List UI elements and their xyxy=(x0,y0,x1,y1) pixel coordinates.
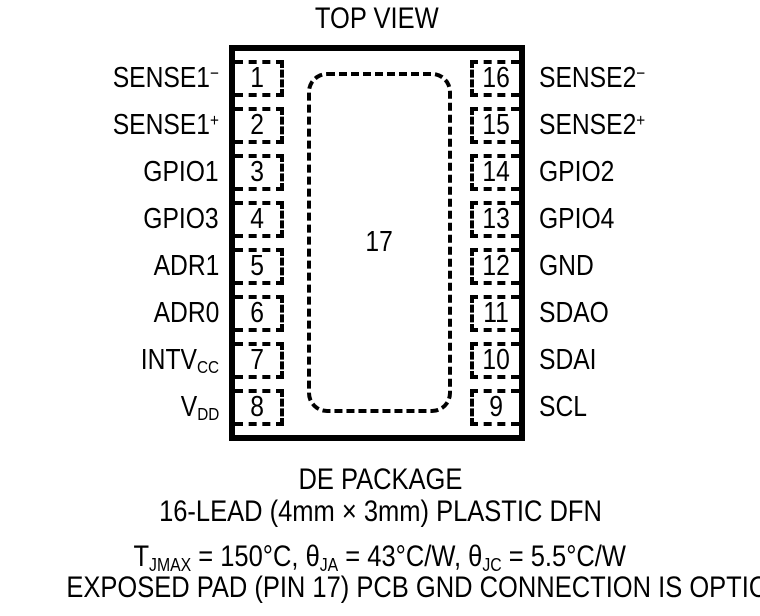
pin-pad-3: 3 xyxy=(235,154,284,191)
pin-label-base: SENSE1 xyxy=(113,109,210,141)
pin-number-12: 12 xyxy=(483,252,510,281)
pin-number-7: 7 xyxy=(251,346,265,375)
exposed-pad: 17 xyxy=(307,72,452,413)
package-name: DE PACKAGE xyxy=(0,464,760,496)
pin-label-sub: CC xyxy=(197,357,219,377)
pin-number-3: 3 xyxy=(251,158,265,187)
pin-pad-4: 4 xyxy=(235,201,284,238)
pin-number-14: 14 xyxy=(483,158,510,187)
pin-pad-5: 5 xyxy=(235,248,284,285)
pin-label-base: SENSE2 xyxy=(539,109,636,141)
top-view-title: TOP VIEW xyxy=(229,3,525,35)
pin-number-8: 8 xyxy=(251,393,265,422)
pin-label-base: V xyxy=(180,391,196,423)
pin-label-sup: − xyxy=(210,63,219,83)
pin-pad-8: 8 xyxy=(235,389,284,426)
pin-label-8: VDD xyxy=(0,389,219,426)
exposed-pad-number: 17 xyxy=(366,228,393,257)
pin-label-base: GPIO1 xyxy=(144,156,219,188)
pin-label-4-text: GPIO3 xyxy=(144,205,219,234)
pin-label-14-text: GPIO2 xyxy=(539,158,614,187)
pin-label-12: GND xyxy=(539,248,760,285)
pin-label-11-text: SDAO xyxy=(539,299,609,328)
exposed-pad-note: EXPOSED PAD (PIN 17) PCB GND CONNECTION … xyxy=(0,572,760,604)
pin-label-9-text: SCL xyxy=(539,393,587,422)
pin-label-15-text: SENSE2+ xyxy=(539,111,645,140)
pin-number-13: 13 xyxy=(483,205,510,234)
pin-label-13-text: GPIO4 xyxy=(539,205,614,234)
pin-label-base: SCL xyxy=(539,391,587,423)
pin-label-base: SDAO xyxy=(539,297,609,329)
pin-label-base: SENSE1 xyxy=(113,62,210,94)
top-view-title-text: TOP VIEW xyxy=(315,3,439,35)
pin-number-10: 10 xyxy=(483,346,510,375)
pin-pad-2: 2 xyxy=(235,107,284,144)
pin-label-9: SCL xyxy=(539,389,760,426)
pin-pad-13: 13 xyxy=(470,201,519,238)
pin-label-8-text: VDD xyxy=(180,393,219,422)
pin-label-16-text: SENSE2− xyxy=(539,64,645,93)
pin-label-sup: − xyxy=(636,63,645,83)
package-description-text: 16-LEAD (4mm × 3mm) PLASTIC DFN xyxy=(159,496,602,528)
pin-pad-1: 1 xyxy=(235,60,284,97)
pin-label-3-text: GPIO1 xyxy=(144,158,219,187)
pin-number-2: 2 xyxy=(251,111,265,140)
pin-pad-11: 11 xyxy=(470,295,519,332)
pin-label-16: SENSE2− xyxy=(539,60,760,97)
pin-label-base: SDAI xyxy=(539,344,597,376)
package-name-text: DE PACKAGE xyxy=(298,464,462,496)
pin-label-10-text: SDAI xyxy=(539,346,597,375)
pin-label-2: SENSE1+ xyxy=(0,107,219,144)
pin-number-5: 5 xyxy=(251,252,265,281)
pin-label-sup: + xyxy=(636,110,645,130)
pin-label-15: SENSE2+ xyxy=(539,107,760,144)
pin-pad-12: 12 xyxy=(470,248,519,285)
pin-number-1: 1 xyxy=(251,64,265,93)
pin-label-6-text: ADR0 xyxy=(153,299,219,328)
pin-label-11: SDAO xyxy=(539,295,760,332)
exposed-pad-note-text: EXPOSED PAD (PIN 17) PCB GND CONNECTION … xyxy=(66,572,760,604)
pin-label-base: GND xyxy=(539,250,594,282)
thermal-t3: = 43°C/W, θ xyxy=(338,540,482,573)
pin-number-9: 9 xyxy=(490,393,504,422)
pin-label-12-text: GND xyxy=(539,252,594,281)
pin-label-13: GPIO4 xyxy=(539,201,760,238)
pin-number-6: 6 xyxy=(251,299,265,328)
thermal-t2: = 150°C, θ xyxy=(191,540,320,573)
pin-pad-7: 7 xyxy=(235,342,284,379)
pin-label-2-text: SENSE1+ xyxy=(113,111,219,140)
pin-label-4: GPIO3 xyxy=(0,201,219,238)
pin-pad-10: 10 xyxy=(470,342,519,379)
pin-label-5-text: ADR1 xyxy=(153,252,219,281)
pin-label-14: GPIO2 xyxy=(539,154,760,191)
pin-label-sup: + xyxy=(210,110,219,130)
pin-number-16: 16 xyxy=(483,64,510,93)
pin-pad-14: 14 xyxy=(470,154,519,191)
pin-label-5: ADR1 xyxy=(0,248,219,285)
pin-label-10: SDAI xyxy=(539,342,760,379)
pin-pad-16: 16 xyxy=(470,60,519,97)
pin-label-6: ADR0 xyxy=(0,295,219,332)
pin-number-15: 15 xyxy=(483,111,510,140)
pin-pad-15: 15 xyxy=(470,107,519,144)
pin-label-3: GPIO1 xyxy=(0,154,219,191)
pin-number-11: 11 xyxy=(484,299,510,328)
pin-label-base: SENSE2 xyxy=(539,62,636,94)
pin-label-base: ADR0 xyxy=(153,297,219,329)
thermal-t4: = 5.5°C/W xyxy=(502,540,626,573)
pin-label-base: GPIO2 xyxy=(539,156,614,188)
pin-label-1-text: SENSE1− xyxy=(113,64,219,93)
thermal-t1: T xyxy=(134,540,150,573)
package-description: 16-LEAD (4mm × 3mm) PLASTIC DFN xyxy=(0,496,760,528)
pin-label-1: SENSE1− xyxy=(0,60,219,97)
pin-label-base: INTV xyxy=(141,344,197,376)
pin-number-4: 4 xyxy=(251,205,265,234)
pin-label-7: INTVCC xyxy=(0,342,219,379)
pin-label-base: GPIO4 xyxy=(539,203,614,235)
pin-label-base: ADR1 xyxy=(153,250,219,282)
pin-label-sub: DD xyxy=(197,404,219,424)
pin-pad-9: 9 xyxy=(470,389,519,426)
pin-label-7-text: INTVCC xyxy=(141,346,219,375)
pinout-diagram: TOP VIEW 17 1 SENSE1− 2 SENSE1+ 3 GPIO1 … xyxy=(0,0,760,616)
pin-pad-6: 6 xyxy=(235,295,284,332)
pin-label-base: GPIO3 xyxy=(144,203,219,235)
